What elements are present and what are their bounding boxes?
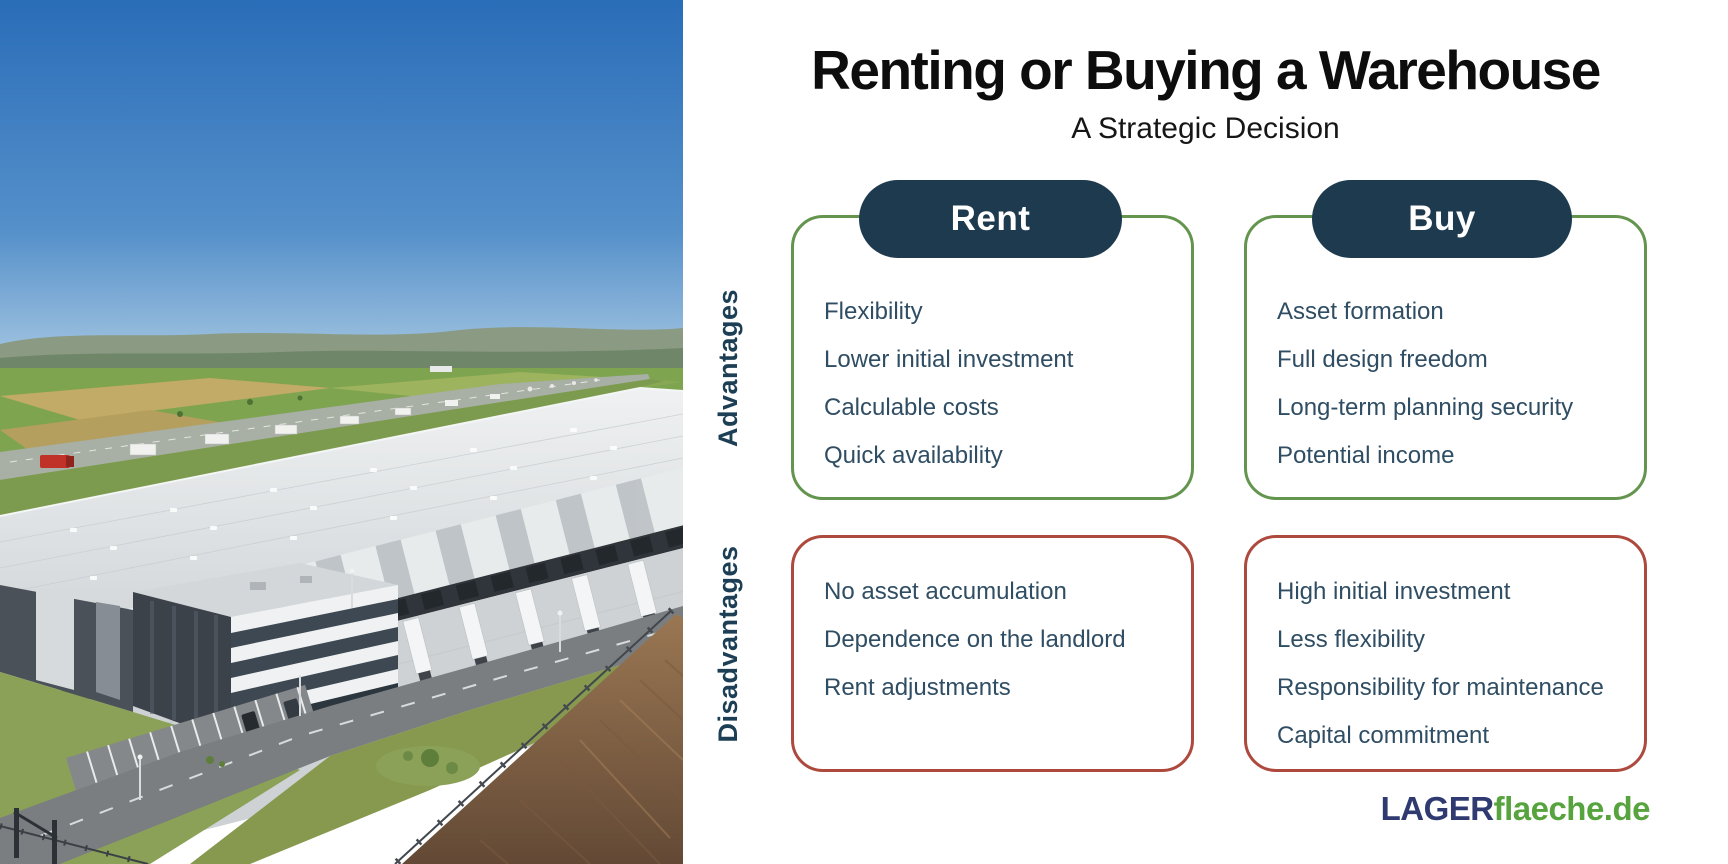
list-item: Lower initial investment [824,336,1181,384]
warehouse-photo-svg [0,0,683,864]
buy-disadvantages-list: High initial investment Less flexibility… [1247,538,1644,760]
list-item: Potential income [1277,432,1634,480]
list-item: Dependence on the landlord [824,616,1181,664]
row-label-advantages: Advantages [706,218,750,518]
rent-header-label: Rent [951,199,1031,239]
list-item: Capital commitment [1277,712,1634,760]
brand-logo: LAGERflaeche.de [1381,790,1650,828]
rent-header-pill: Rent [859,180,1122,258]
list-item: Calculable costs [824,384,1181,432]
infographic-root: Renting or Buying a Warehouse A Strategi… [0,0,1728,864]
brand-logo-part1: LAGER [1381,790,1494,827]
list-item: No asset accumulation [824,568,1181,616]
list-item: Full design freedom [1277,336,1634,384]
list-item: Quick availability [824,432,1181,480]
list-item: Responsibility for maintenance [1277,664,1634,712]
buy-disadvantages-box: High initial investment Less flexibility… [1244,535,1647,772]
list-item: Less flexibility [1277,616,1634,664]
warehouse-photo [0,0,683,864]
content-panel: Renting or Buying a Warehouse A Strategi… [683,0,1728,864]
page-title: Renting or Buying a Warehouse [683,38,1728,102]
list-item: Flexibility [824,288,1181,336]
brand-logo-part2: flaeche.de [1494,790,1650,827]
rent-disadvantages-box: No asset accumulation Dependence on the … [791,535,1194,772]
rent-disadvantages-list: No asset accumulation Dependence on the … [794,538,1191,712]
list-item: Long-term planning security [1277,384,1634,432]
buy-header-pill: Buy [1312,180,1572,258]
list-item: Rent adjustments [824,664,1181,712]
row-label-disadvantages: Disadvantages [706,494,750,794]
buy-header-label: Buy [1408,199,1476,239]
list-item: Asset formation [1277,288,1634,336]
list-item: High initial investment [1277,568,1634,616]
page-subtitle: A Strategic Decision [683,112,1728,146]
